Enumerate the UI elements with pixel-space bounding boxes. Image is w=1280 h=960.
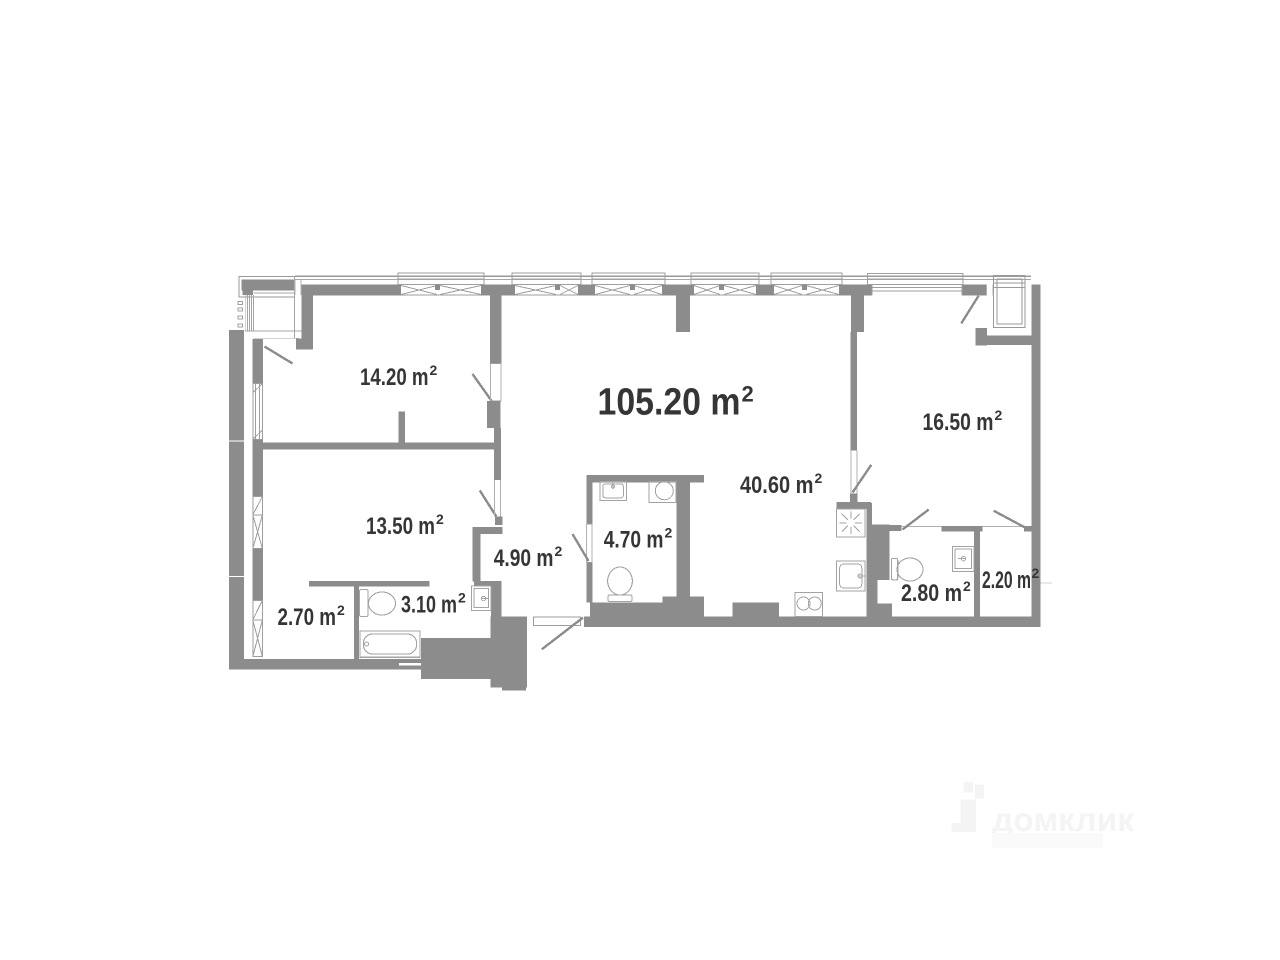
svg-text:3.10 m: 3.10 m [401, 592, 457, 619]
svg-text:4.90 m: 4.90 m [494, 545, 554, 572]
svg-text:16.50 m: 16.50 m [923, 409, 994, 436]
svg-text:2: 2 [665, 525, 673, 541]
svg-text:2: 2 [815, 470, 823, 486]
svg-text:13.50 m: 13.50 m [366, 513, 435, 540]
svg-text:2: 2 [963, 578, 971, 594]
svg-text:2: 2 [430, 362, 438, 378]
svg-text:домклик: домклик [992, 801, 1134, 838]
svg-text:4.70 m: 4.70 m [604, 527, 664, 554]
svg-text:2: 2 [742, 382, 754, 407]
svg-text:14.20 m: 14.20 m [360, 364, 429, 391]
svg-text:40.60 m: 40.60 m [740, 472, 814, 499]
svg-text:2: 2 [555, 543, 563, 559]
svg-text:105.20 m: 105.20 m [598, 382, 741, 424]
svg-text:2.80 m: 2.80 m [901, 580, 962, 607]
svg-text:2: 2 [995, 407, 1003, 423]
svg-text:2: 2 [1032, 565, 1040, 581]
svg-text:2: 2 [436, 511, 444, 527]
svg-text:2.20 m: 2.20 m [982, 567, 1031, 594]
svg-text:2: 2 [458, 590, 466, 606]
svg-text:2: 2 [337, 602, 345, 618]
svg-text:2.70 m: 2.70 m [278, 604, 337, 631]
